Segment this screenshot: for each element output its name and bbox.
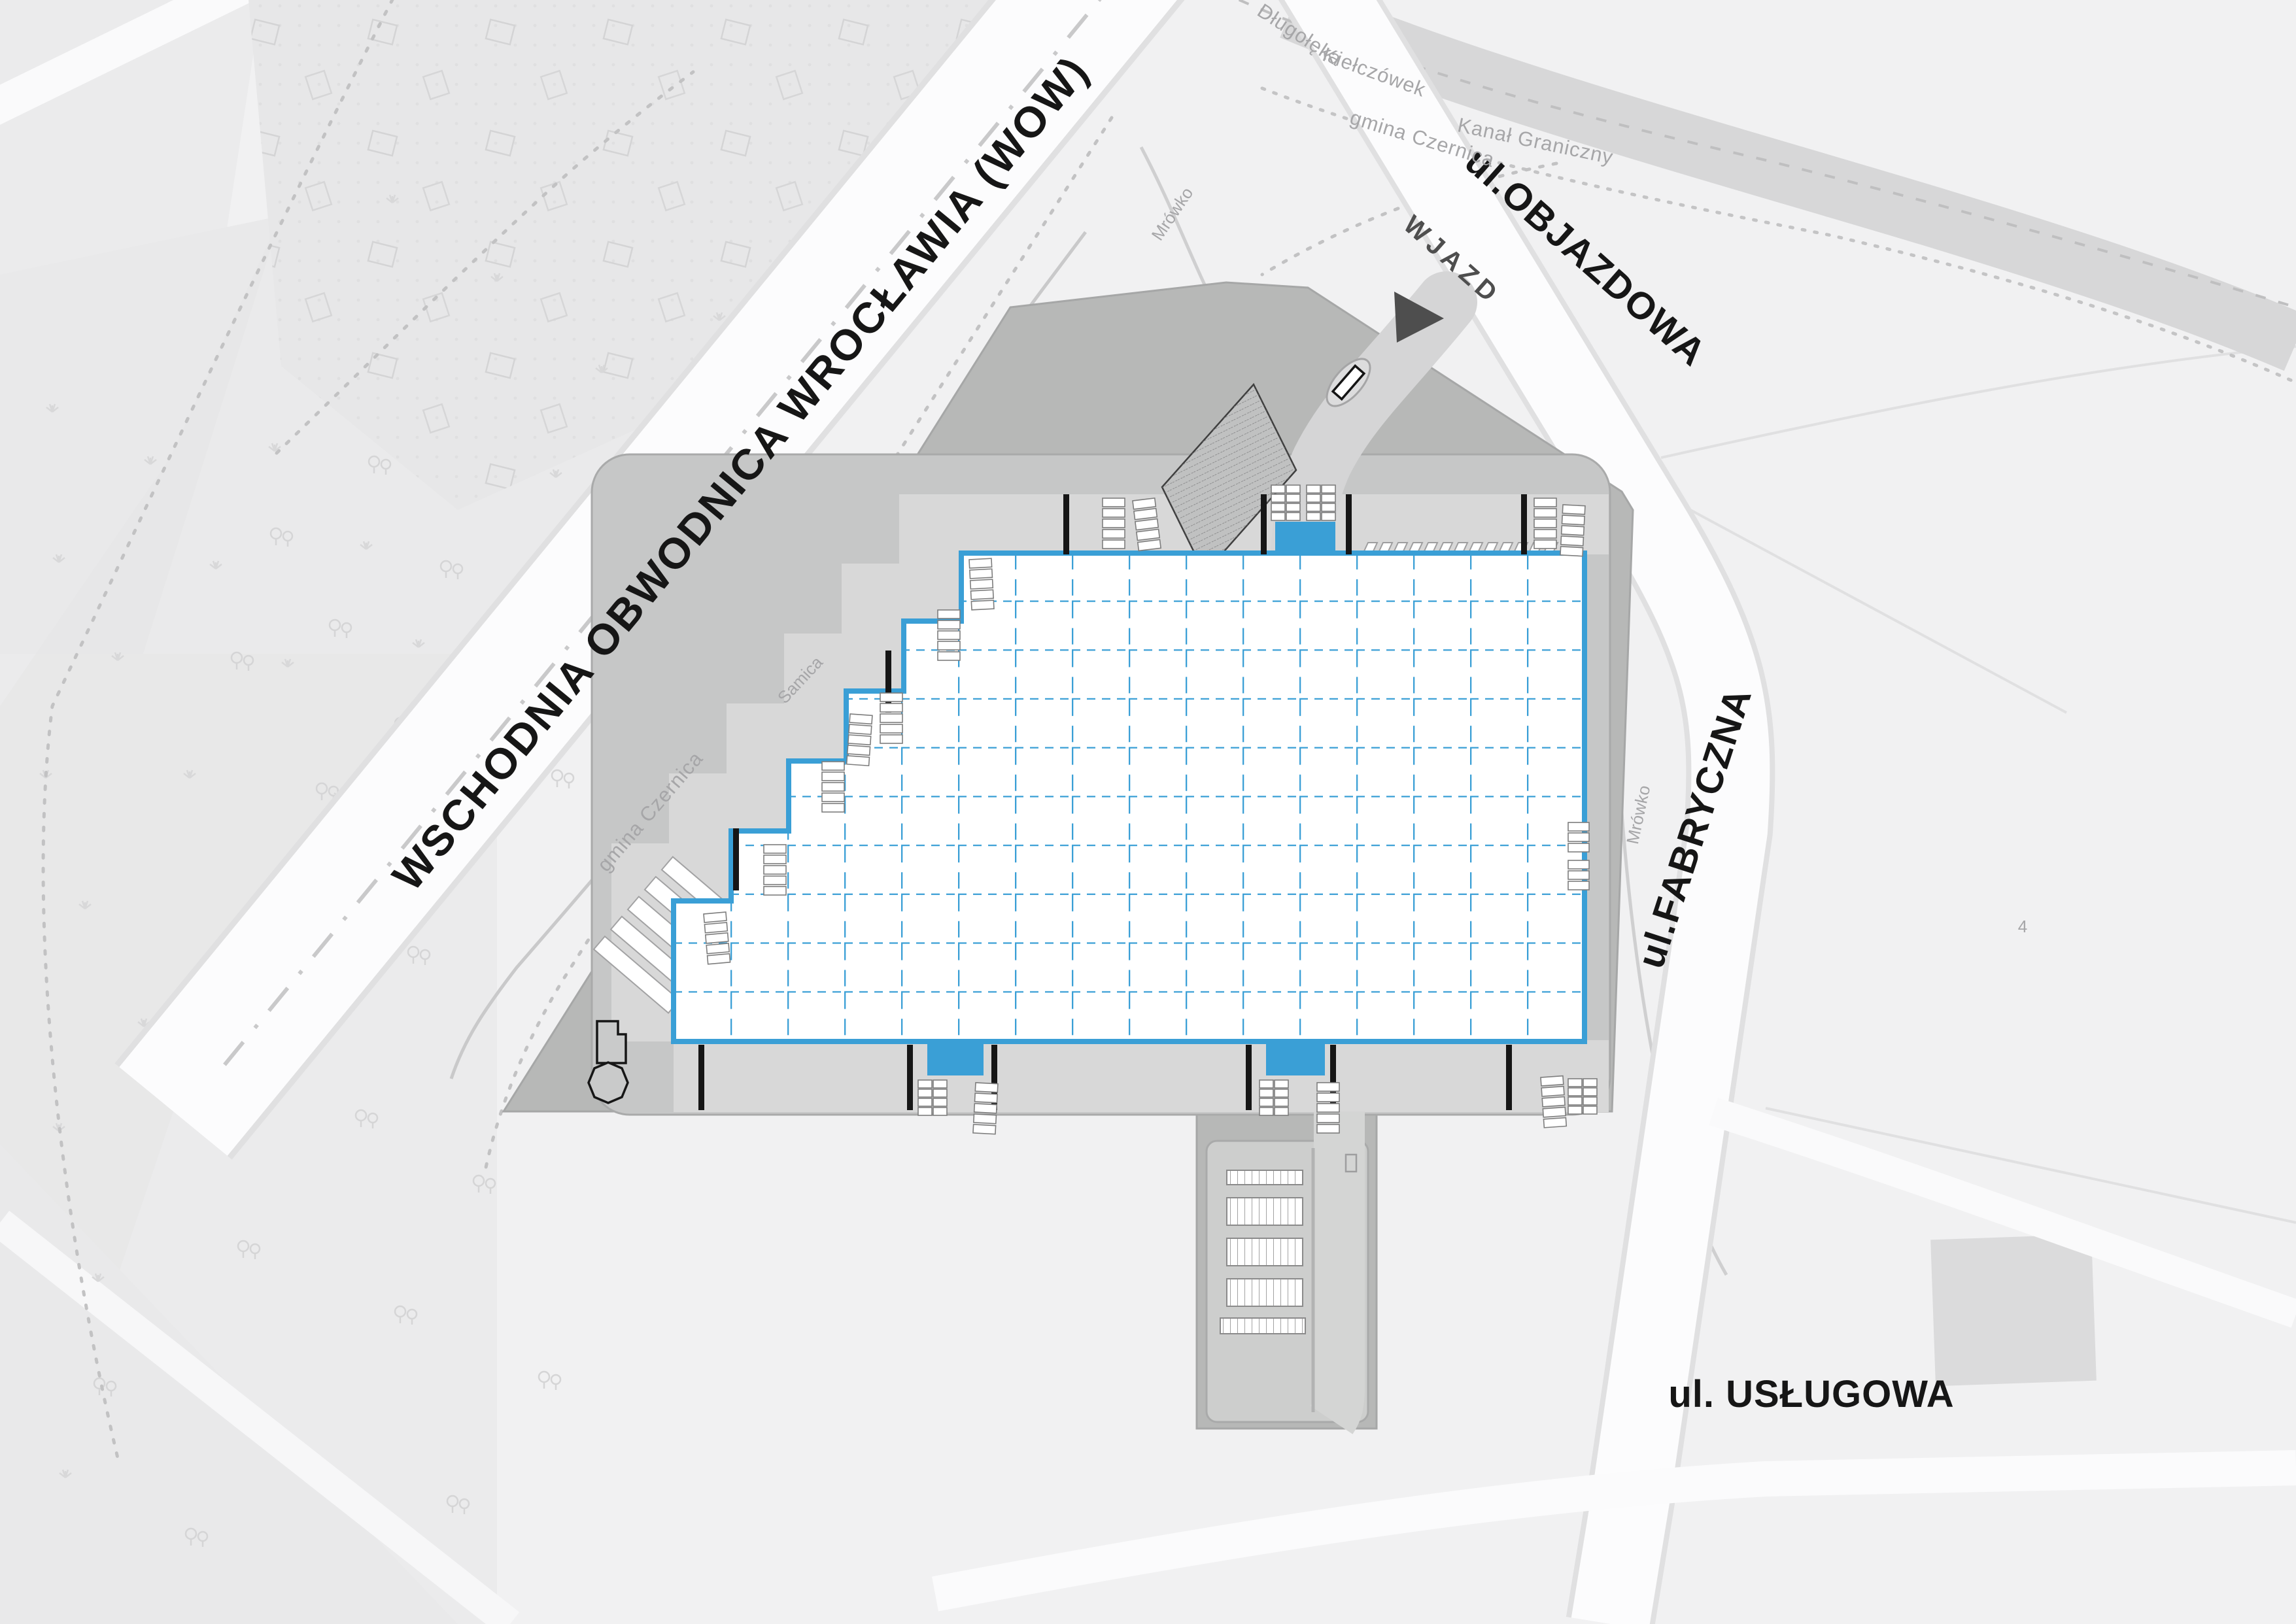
entrance-south-left [927, 1040, 984, 1075]
map-canvas: WSCHODNIA OBWODNICA WROCŁAWIA (WOW) ul.O… [0, 0, 2296, 1624]
kiosk [1346, 1155, 1356, 1172]
water-tank [589, 1062, 628, 1103]
access-road-south [1331, 1111, 1339, 1420]
entrance-north [1275, 522, 1335, 554]
site-plan-map: WSCHODNIA OBWODNICA WROCŁAWIA (WOW) ul.O… [0, 0, 2296, 1624]
south-parking-area [1207, 1111, 1368, 1422]
uslugowa-label: ul. USŁUGOWA [1668, 1373, 1954, 1415]
parcel-square [1930, 1234, 2097, 1386]
entrance-south-right [1266, 1040, 1325, 1075]
parcel-number-label: 4 [2018, 917, 2027, 936]
